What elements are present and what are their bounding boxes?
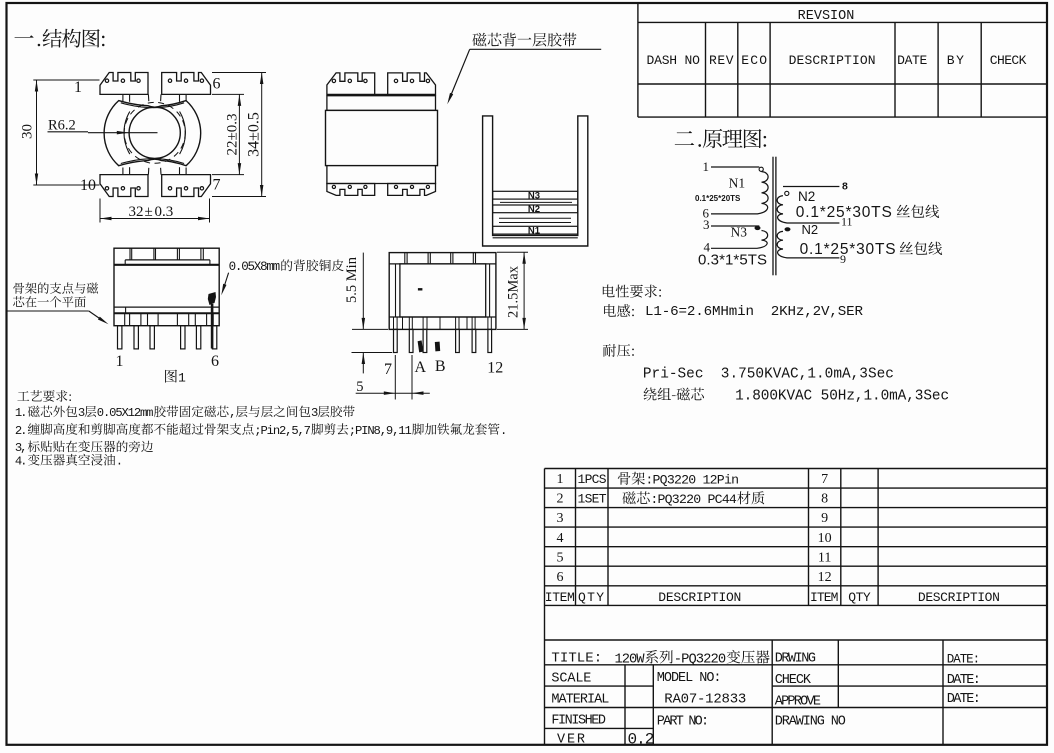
svg-text:7: 7	[384, 361, 392, 378]
svg-text:ITEM: ITEM	[810, 590, 838, 605]
svg-text:120W: 120W	[615, 652, 646, 667]
svg-text:1: 1	[557, 472, 564, 487]
svg-text:SCALE: SCALE	[551, 672, 591, 687]
svg-text:1SET: 1SET	[578, 491, 607, 506]
svg-text:MATERIAL: MATERIAL	[551, 693, 609, 708]
svg-text:3: 3	[78, 406, 85, 420]
svg-text:3: 3	[557, 511, 564, 526]
svg-text:6: 6	[211, 353, 219, 370]
svg-text:9: 9	[821, 511, 828, 526]
svg-text:DATE: DATE	[897, 53, 927, 68]
svg-text:DESCRIPTION: DESCRIPTION	[918, 590, 1000, 605]
svg-text:;PIN8,9,11: ;PIN8,9,11	[349, 424, 412, 438]
svg-text:CHECK: CHECK	[990, 53, 1027, 68]
svg-text:RA07-12833: RA07-12833	[664, 692, 746, 708]
svg-text:QTY: QTY	[848, 590, 871, 605]
svg-text:REVSION: REVSION	[798, 9, 855, 24]
svg-text:±: ±	[145, 204, 153, 220]
svg-text:APPROVE: APPROVE	[775, 695, 821, 710]
svg-text:Pri-Sec 3.750KVAC,1.0mA,3Sec: Pri-Sec 3.750KVAC,1.0mA,3Sec	[643, 367, 894, 383]
svg-text:DRAWING NO: DRAWING NO	[775, 715, 846, 730]
svg-text:0.3*1*5TS: 0.3*1*5TS	[698, 252, 767, 269]
svg-text:DRWING: DRWING	[775, 652, 816, 667]
svg-text:CHECK: CHECK	[775, 673, 812, 688]
svg-text:10: 10	[818, 531, 832, 546]
svg-text:5: 5	[557, 550, 564, 565]
svg-text:3: 3	[311, 406, 318, 420]
svg-text:7: 7	[213, 177, 221, 194]
svg-text:11: 11	[818, 550, 831, 565]
svg-text:3,: 3,	[15, 441, 28, 455]
svg-text::PQ3220 12Pin: :PQ3220 12Pin	[645, 473, 739, 488]
svg-text:ITEM: ITEM	[545, 590, 575, 605]
svg-text:22±0.3: 22±0.3	[225, 114, 241, 156]
svg-text:32: 32	[129, 204, 144, 220]
svg-text:.: .	[500, 424, 507, 438]
svg-text:5.5 Min: 5.5 Min	[344, 256, 360, 303]
svg-text:,: ,	[229, 406, 236, 420]
svg-text:REV: REV	[709, 53, 734, 68]
svg-text:1.800KVAC 50Hz,1.0mA,3Sec: 1.800KVAC 50Hz,1.0mA,3Sec	[735, 389, 949, 405]
svg-text:1: 1	[74, 79, 82, 96]
svg-text:6: 6	[557, 570, 564, 585]
svg-text:1: 1	[116, 353, 124, 370]
svg-text::PQ3220 PC44: :PQ3220 PC44	[650, 492, 736, 507]
svg-text:34±0.5: 34±0.5	[246, 112, 263, 157]
svg-text:MODEL NO:: MODEL NO:	[657, 671, 722, 686]
svg-text:0.05X8mm: 0.05X8mm	[229, 260, 281, 274]
svg-text:4.: 4.	[15, 455, 28, 469]
svg-text:6: 6	[213, 76, 221, 93]
svg-text:-PQ3220: -PQ3220	[674, 652, 727, 667]
svg-text:5: 5	[356, 379, 363, 395]
svg-text:3: 3	[703, 217, 710, 232]
svg-text:0.1*25*20TS: 0.1*25*20TS	[695, 194, 741, 203]
svg-text:0.2: 0.2	[628, 731, 655, 749]
svg-text:B: B	[435, 358, 446, 375]
svg-text:N2: N2	[798, 189, 815, 204]
svg-text:DATE:: DATE:	[947, 673, 981, 688]
svg-text:1.: 1.	[15, 406, 28, 420]
svg-text:;Pin2,5,7: ;Pin2,5,7	[254, 424, 311, 438]
svg-text:21.5Max: 21.5Max	[506, 265, 522, 318]
svg-text:2.: 2.	[15, 424, 28, 438]
svg-text:DESCRIPTION: DESCRIPTION	[658, 590, 741, 605]
svg-text:R6.2: R6.2	[48, 118, 76, 134]
svg-text:10: 10	[80, 177, 96, 194]
svg-text:L1-6=2.6MHmin 2KHz,2V,SER: L1-6=2.6MHmin 2KHz,2V,SER	[645, 304, 863, 320]
svg-text:ECO: ECO	[741, 53, 767, 68]
svg-text:DESCRIPTION: DESCRIPTION	[789, 53, 876, 68]
svg-text:TITLE:: TITLE:	[551, 651, 602, 667]
svg-text:4: 4	[557, 531, 564, 546]
svg-text:A: A	[415, 359, 427, 376]
svg-text:1: 1	[178, 371, 186, 386]
svg-text:QTY: QTY	[578, 590, 604, 605]
svg-text:12: 12	[818, 570, 832, 585]
svg-text:DATE:: DATE:	[947, 692, 981, 707]
svg-text:N3: N3	[731, 225, 748, 240]
svg-text:N2: N2	[802, 222, 819, 237]
svg-text:1: 1	[703, 159, 710, 174]
svg-text:0.1*25*30TS: 0.1*25*30TS	[800, 241, 896, 258]
svg-text:7: 7	[821, 472, 828, 487]
svg-text:VER: VER	[557, 733, 585, 748]
svg-text:2: 2	[557, 492, 564, 507]
svg-text:0.1*25*30TS: 0.1*25*30TS	[796, 204, 892, 221]
svg-text:N1: N1	[528, 225, 541, 236]
svg-text:30: 30	[20, 124, 36, 139]
svg-text:FINISHED: FINISHED	[551, 714, 606, 729]
svg-text:1PCS: 1PCS	[578, 472, 607, 487]
svg-text:PART NO:: PART NO:	[657, 715, 709, 730]
svg-text:DASH NO: DASH NO	[647, 53, 701, 68]
svg-text:N3: N3	[528, 190, 540, 201]
svg-text:DATE:: DATE:	[947, 653, 980, 667]
svg-text:0.05X12mm: 0.05X12mm	[97, 406, 154, 420]
svg-text:.: .	[116, 455, 123, 469]
svg-text:12: 12	[487, 359, 503, 376]
svg-text:N1: N1	[729, 176, 746, 191]
svg-text:BY: BY	[947, 53, 964, 68]
svg-text:8: 8	[821, 492, 828, 507]
svg-text:N2: N2	[528, 204, 540, 215]
svg-text:0.3: 0.3	[155, 204, 174, 220]
svg-text:8: 8	[842, 181, 848, 193]
